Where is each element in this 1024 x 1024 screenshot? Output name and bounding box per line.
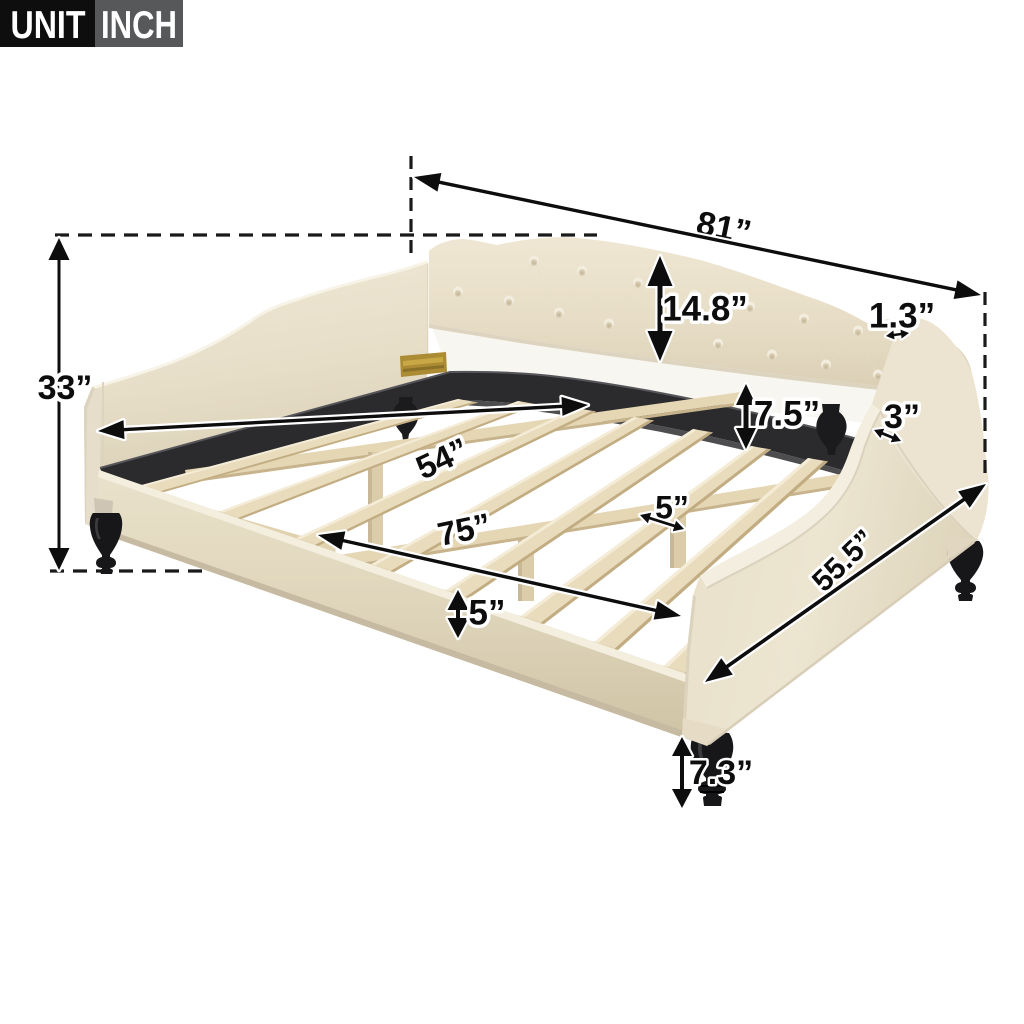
svg-text:33”: 33” <box>38 369 93 407</box>
svg-text:7.5”: 7.5” <box>754 395 820 434</box>
svg-text:7.3”: 7.3” <box>689 754 753 792</box>
svg-text:5”: 5” <box>469 594 506 633</box>
svg-text:UNIT: UNIT <box>11 4 86 47</box>
svg-text:14.8”: 14.8” <box>662 290 748 329</box>
svg-text:3”: 3” <box>884 398 920 436</box>
svg-text:INCH: INCH <box>101 4 177 47</box>
